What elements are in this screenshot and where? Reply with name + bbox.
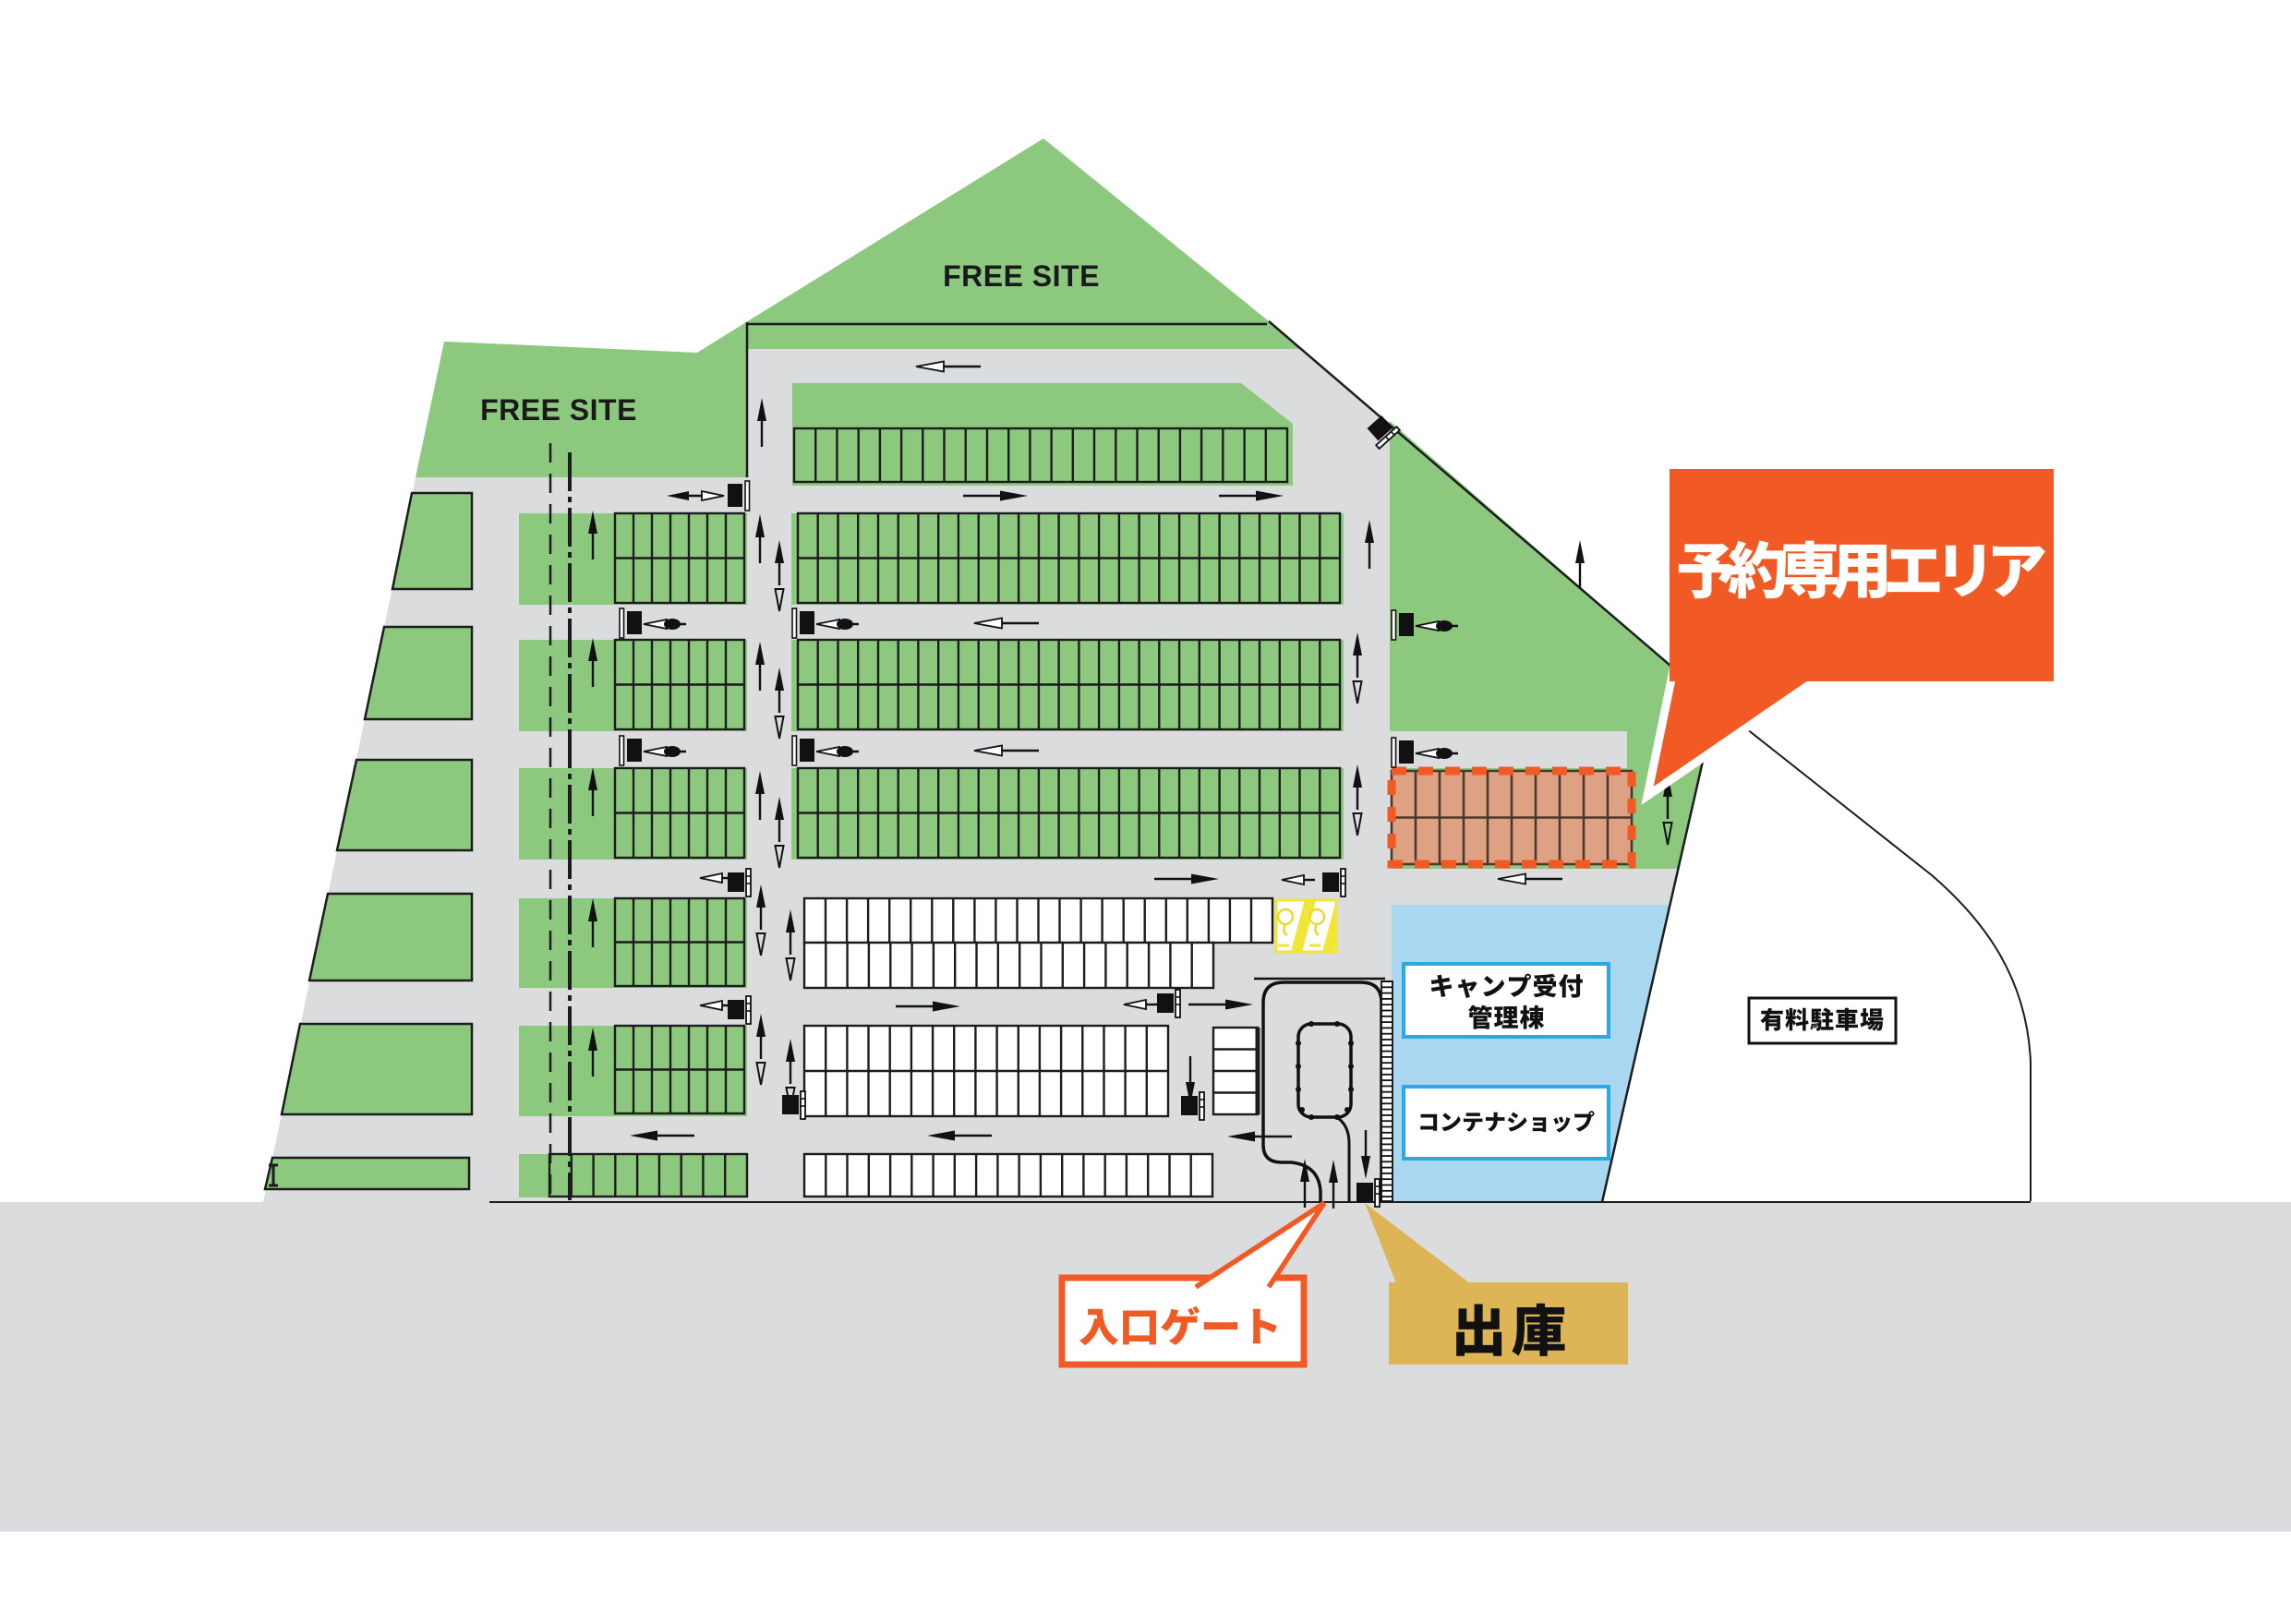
svg-text:FREE SITE: FREE SITE [480, 393, 637, 427]
svg-text:FREE SITE: FREE SITE [943, 259, 1100, 293]
